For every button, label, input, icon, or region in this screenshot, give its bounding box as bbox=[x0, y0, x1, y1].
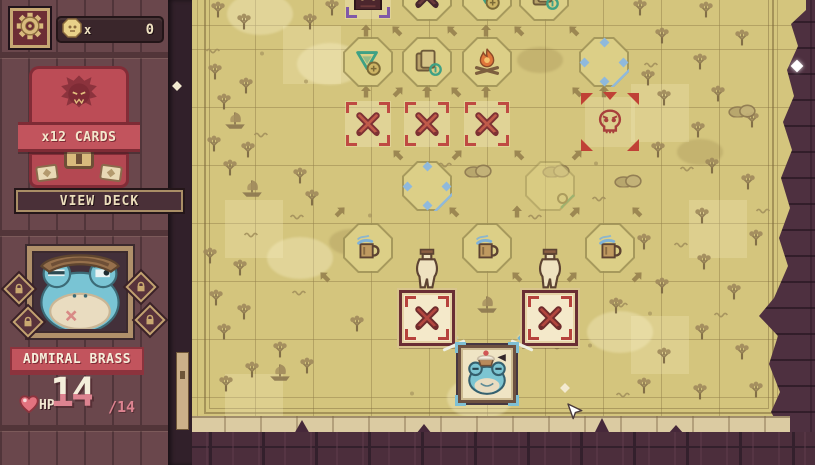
deco-tree bbox=[657, 348, 672, 369]
deco-tree bbox=[237, 304, 252, 325]
deco-tree bbox=[637, 378, 652, 399]
deco-tree bbox=[233, 260, 248, 281]
deco-tree bbox=[208, 64, 223, 85]
deco-tree bbox=[637, 234, 652, 255]
deco-tree bbox=[350, 316, 365, 337]
deco-tree bbox=[207, 136, 222, 157]
deco-squiggle bbox=[614, 293, 631, 312]
deco-tree bbox=[693, 384, 708, 405]
hp-current-value: 14 bbox=[50, 370, 92, 416]
lock-icon bbox=[144, 314, 156, 326]
gear-icon bbox=[15, 11, 45, 45]
deco-tree bbox=[691, 122, 706, 143]
heart-icon bbox=[18, 394, 40, 418]
deco-tree bbox=[705, 158, 720, 179]
coin-icon bbox=[62, 18, 82, 42]
hanging-strap bbox=[176, 352, 189, 430]
deco-tree bbox=[209, 290, 224, 311]
game-screen: x 0 x12 CARDS bbox=[0, 0, 815, 465]
map-node-elite-skull bbox=[585, 97, 635, 147]
deco-squiggle bbox=[254, 123, 271, 142]
deco-squiggle bbox=[616, 383, 633, 402]
deco-tree bbox=[711, 86, 726, 107]
deco-tree bbox=[237, 14, 252, 35]
deck-count-label: x12 CARDS bbox=[42, 130, 117, 145]
map-node-treasure bbox=[579, 37, 629, 87]
beast-emblem-icon bbox=[52, 70, 106, 124]
view-deck-button[interactable]: VIEW DECK bbox=[14, 188, 185, 214]
deco-stain-dark bbox=[517, 47, 563, 73]
cursor-icon bbox=[566, 402, 585, 427]
player-token-frog-captain bbox=[458, 345, 516, 403]
deco-tree bbox=[741, 174, 756, 195]
deco-tree bbox=[217, 324, 232, 345]
map-node-tavern-mug bbox=[462, 223, 512, 273]
jug-marker-icon bbox=[536, 247, 564, 295]
settings-button[interactable] bbox=[8, 6, 52, 50]
hp-max-value: /14 bbox=[108, 398, 135, 416]
deco-tree bbox=[325, 0, 340, 21]
sidebar: x 0 x12 CARDS bbox=[0, 0, 192, 465]
map-node-rest-campfire bbox=[462, 37, 512, 87]
deco-tree bbox=[749, 382, 764, 403]
deco-rocks bbox=[614, 173, 642, 192]
deco-ship bbox=[475, 294, 499, 318]
jug-marker-icon bbox=[413, 247, 441, 295]
deco-tree bbox=[305, 190, 320, 211]
wood-beam bbox=[0, 52, 168, 58]
deco-squiggle bbox=[290, 205, 307, 224]
deco-squiggle bbox=[714, 303, 731, 322]
lock-icon bbox=[135, 281, 147, 293]
deco-tree bbox=[300, 358, 315, 379]
deco-tree bbox=[727, 284, 742, 305]
deco-tree bbox=[303, 14, 318, 35]
deco-tree bbox=[657, 90, 672, 111]
map-node-card-draft bbox=[402, 37, 452, 87]
deco-ship bbox=[240, 178, 264, 202]
deco-tile-light bbox=[283, 26, 341, 84]
deco-dot bbox=[410, 381, 414, 400]
map-node-treasure bbox=[402, 161, 452, 211]
deco-tree bbox=[239, 78, 254, 99]
deck-belt bbox=[29, 152, 129, 188]
belt-buckle-icon bbox=[64, 149, 94, 169]
coin-value: 0 bbox=[146, 22, 154, 38]
deco-tree bbox=[633, 0, 648, 21]
deco-squiggle bbox=[756, 199, 773, 218]
character-name: ADMIRAL BRASS bbox=[23, 352, 131, 367]
sidebar-edge-gap bbox=[168, 0, 192, 465]
lock-icon bbox=[22, 316, 34, 328]
world-map-parchment bbox=[190, 0, 808, 430]
deco-tree bbox=[245, 362, 260, 383]
deco-squiggle bbox=[592, 187, 609, 206]
deco-squiggle bbox=[674, 233, 691, 252]
path-arrow-icon bbox=[511, 203, 523, 222]
corner-plate-icon bbox=[35, 164, 59, 183]
map-node-battle-active[interactable] bbox=[399, 290, 455, 346]
trinket-slot-locked bbox=[134, 304, 165, 335]
deco-dot bbox=[260, 41, 264, 60]
deco-tree bbox=[203, 248, 218, 269]
deco-tree bbox=[695, 208, 710, 229]
deco-squiggle bbox=[206, 39, 223, 58]
deco-tree bbox=[695, 324, 710, 345]
map-node-battle bbox=[345, 101, 391, 147]
currency-counter: x 0 bbox=[56, 16, 164, 43]
frog-admiral-portrait-icon bbox=[33, 246, 127, 333]
map-node-tavern-mug bbox=[343, 223, 393, 273]
deco-rocks bbox=[728, 103, 756, 122]
character-name-banner: ADMIRAL BRASS bbox=[10, 347, 144, 372]
deco-tree bbox=[223, 160, 238, 181]
deco-tree bbox=[651, 142, 666, 163]
view-deck-label: VIEW DECK bbox=[60, 194, 139, 209]
deco-squiggle bbox=[244, 223, 261, 242]
card-back bbox=[29, 66, 129, 128]
deco-tree bbox=[655, 278, 670, 299]
map-node-boss bbox=[345, 0, 391, 19]
map-node-tavern-mug bbox=[585, 223, 635, 273]
deco-tree bbox=[693, 54, 708, 75]
deco-tree bbox=[273, 342, 288, 363]
coin-multiplier-label: x bbox=[84, 23, 91, 37]
deco-dot bbox=[588, 333, 592, 352]
deco-squiggle bbox=[680, 157, 697, 176]
deco-tree bbox=[219, 376, 234, 397]
corner-plate-icon bbox=[99, 164, 123, 183]
deco-dot bbox=[648, 301, 652, 320]
deco-tree bbox=[655, 28, 670, 49]
wood-beam bbox=[0, 425, 168, 431]
map-node-battle bbox=[464, 101, 510, 147]
deco-tree bbox=[699, 2, 714, 23]
deco-ship bbox=[268, 362, 292, 386]
deco-dot bbox=[594, 151, 598, 170]
deco-tree bbox=[735, 344, 750, 365]
map-node-battle bbox=[404, 101, 450, 147]
deco-tree bbox=[641, 70, 656, 91]
deck-count-band: x12 CARDS bbox=[18, 122, 140, 152]
map-node-reward-gem bbox=[525, 161, 575, 211]
deco-tree bbox=[241, 142, 256, 163]
sparkle-icon bbox=[791, 60, 804, 73]
deco-tree bbox=[697, 254, 712, 275]
deco-tree bbox=[211, 2, 226, 23]
deco-ship bbox=[223, 110, 247, 134]
deco-tree bbox=[749, 230, 764, 251]
deck-card[interactable]: x12 CARDS bbox=[18, 66, 140, 188]
deco-rocks bbox=[464, 163, 492, 182]
deco-squiggle bbox=[292, 281, 309, 300]
hp-row: HP 14 /14 bbox=[12, 374, 162, 422]
wood-beam bbox=[0, 230, 168, 236]
deco-tree bbox=[735, 30, 750, 51]
portrait-frame bbox=[27, 246, 133, 338]
deco-dot bbox=[368, 203, 372, 222]
map-node-battle-active[interactable] bbox=[522, 290, 578, 346]
deco-dot bbox=[304, 69, 308, 88]
lock-icon bbox=[13, 283, 25, 295]
deco-tree bbox=[293, 168, 308, 189]
deco-squiggle bbox=[644, 53, 661, 72]
map-node-sell-cards bbox=[343, 37, 393, 87]
